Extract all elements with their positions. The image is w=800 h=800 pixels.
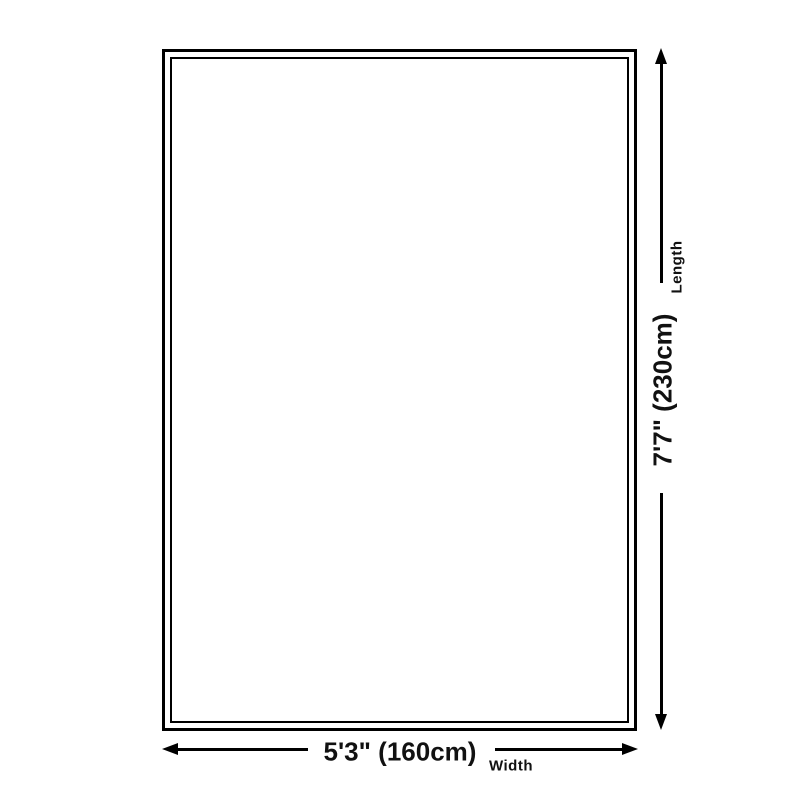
- length-value: 7'7" (230cm): [648, 314, 679, 467]
- rug-outline: [162, 49, 637, 731]
- rug-inner-outline: [170, 57, 629, 723]
- arrow-down-icon: [655, 714, 667, 730]
- width-label: Width: [489, 758, 533, 775]
- width-dimension-line-right: [495, 748, 625, 751]
- dimension-diagram: Length 7'7" (230cm) 5'3" (160cm) Width: [0, 0, 800, 800]
- length-label: Length: [669, 241, 686, 294]
- length-dimension-line-bottom: [660, 493, 663, 717]
- arrow-right-icon: [622, 743, 638, 755]
- width-value: 5'3" (160cm): [324, 737, 477, 768]
- width-dimension-line-left: [175, 748, 308, 751]
- length-dimension-line-top: [660, 60, 663, 283]
